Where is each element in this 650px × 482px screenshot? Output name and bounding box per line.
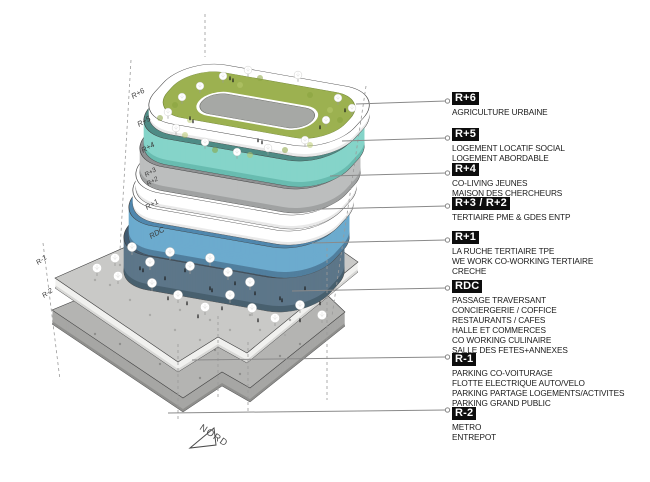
grass-texture: [337, 117, 343, 123]
person-icon: [186, 301, 187, 305]
floor-code-badge: R+5: [452, 128, 479, 141]
floor-code-badge: RDC: [452, 280, 482, 293]
floor-description-line: HALLE ET COMMERCES: [452, 325, 568, 335]
person-icon: [164, 276, 165, 280]
concrete-speck: [159, 363, 161, 365]
floor-description: AGRICULTURE URBAINE: [452, 107, 551, 117]
floor-tag-r6: R+6: [130, 86, 147, 101]
person-icon: [257, 318, 258, 322]
floor-description-line: RESTAURANTS / CAFES: [452, 315, 568, 325]
floor-description-line: CO WORKING CULINAIRE: [452, 335, 568, 345]
leader-line-rm2: [168, 410, 446, 413]
floor-description: TERTIAIRE PME & GDES ENTP: [452, 212, 574, 222]
floor-code-badge: R+1: [452, 231, 479, 244]
floor-code-badge: R+3 / R+2: [452, 197, 510, 210]
concrete-speck: [279, 355, 281, 357]
floor-code-badge: R+6: [452, 92, 479, 105]
grass-texture: [172, 102, 178, 108]
person-icon: [184, 268, 185, 272]
legend-item-r3-r2: R+3 / R+2 TERTIAIRE PME & GDES ENTP: [452, 193, 574, 222]
concrete-speck: [249, 314, 251, 316]
floor-description-line: AGRICULTURE URBAINE: [452, 107, 548, 117]
grass-texture: [327, 107, 333, 113]
person-icon: [167, 296, 168, 300]
legend-item-rm2: R-2 METRO ENTREPOT: [452, 403, 497, 442]
architecture-program-diagram: R+6 R+5 R+4 R+3 R+2 R+1 RDC R-1 R-2 NORD…: [0, 0, 650, 482]
leader-end-circle: [445, 286, 449, 290]
leader-end-circle: [445, 99, 449, 103]
floor-tag-rm2: R-2: [41, 287, 54, 299]
concrete-speck: [174, 329, 176, 331]
floor-description-line: TERTIAIRE PME & GDES ENTP: [452, 212, 570, 222]
floor-description: PARKING CO-VOITURAGE FLOTTE ELECTRIQUE A…: [452, 368, 630, 408]
person-icon: [221, 306, 222, 310]
grass-texture: [212, 147, 218, 153]
person-icon: [344, 108, 345, 112]
person-icon: [257, 138, 258, 142]
grass-texture: [282, 147, 288, 153]
person-icon: [139, 266, 140, 270]
floor-description: PASSAGE TRAVERSANT CONCIERGERIE / COFFIC…: [452, 295, 571, 355]
concrete-speck: [109, 284, 111, 286]
floor-description-line: PARKING PARTAGE LOGEMENTS/ACTIVITES: [452, 388, 624, 398]
north-arrow-icon: NORD: [190, 422, 230, 449]
floor-description: METRO ENTREPOT: [452, 422, 497, 442]
concrete-speck: [229, 329, 231, 331]
concrete-speck: [129, 299, 131, 301]
leader-end-circle: [445, 408, 449, 412]
grass-texture: [182, 132, 188, 138]
leader-end-circle: [445, 171, 449, 175]
concrete-speck: [289, 319, 291, 321]
grass-texture: [307, 92, 313, 98]
floor-description-line: LA RUCHE TERTIAIRE TPE: [452, 246, 593, 256]
person-icon: [197, 314, 198, 318]
floor-description-line: PARKING CO-VOITURAGE: [452, 368, 624, 378]
floor-description-line: METRO: [452, 422, 496, 432]
concrete-speck: [149, 314, 151, 316]
leader-end-circle: [445, 355, 449, 359]
concrete-speck: [239, 373, 241, 375]
leader-end-circle: [445, 136, 449, 140]
person-icon: [192, 119, 193, 123]
person-icon: [299, 318, 300, 322]
grass-texture: [157, 115, 163, 121]
floor-description: LA RUCHE TERTIAIRE TPE WE WORK CO-WORKIN…: [452, 246, 598, 276]
person-icon: [281, 298, 282, 302]
person-icon: [232, 78, 233, 82]
person-icon: [211, 288, 212, 292]
legend-item-rdc: RDC PASSAGE TRAVERSANT CONCIERGERIE / CO…: [452, 276, 571, 355]
person-icon: [229, 76, 230, 80]
person-icon: [209, 286, 210, 290]
concrete-speck: [199, 339, 201, 341]
floor-description-line: FLOTTE ELECTRIQUE AUTO/VELO: [452, 378, 624, 388]
leader-end-circle: [445, 238, 449, 242]
concrete-speck: [209, 319, 211, 321]
grass-texture: [257, 75, 263, 81]
person-icon: [319, 301, 320, 305]
person-icon: [254, 291, 255, 295]
concrete-speck: [94, 279, 96, 281]
floor-description-line: LOGEMENT LOCATIF SOCIAL: [452, 143, 565, 153]
person-icon: [261, 140, 262, 144]
person-icon: [189, 116, 190, 120]
floor-description-line: CO-LIVING JEUNES: [452, 178, 562, 188]
person-icon: [304, 286, 305, 290]
concrete-speck: [284, 334, 286, 336]
floor-description-line: CONCIERGERIE / COFFICE: [452, 305, 568, 315]
floor-description-line: CRECHE: [452, 266, 593, 276]
grass-texture: [247, 152, 253, 158]
concrete-speck: [179, 309, 181, 311]
person-icon: [319, 125, 320, 129]
person-icon: [142, 268, 143, 272]
person-icon: [234, 281, 235, 285]
floor-code-badge: R-1: [452, 353, 476, 366]
floor-description-line: PASSAGE TRAVERSANT: [452, 295, 568, 305]
legend-item-r1: R+1 LA RUCHE TERTIAIRE TPE WE WORK CO-WO…: [452, 227, 598, 276]
floor-tag-rm1: R-1: [35, 254, 48, 266]
legend-item-r6: R+6 AGRICULTURE URBAINE: [452, 88, 551, 117]
concrete-speck: [94, 333, 96, 335]
grass-texture: [237, 82, 243, 88]
floor-code-badge: R+4: [452, 163, 479, 176]
floor-description-line: ENTREPOT: [452, 432, 496, 442]
concrete-speck: [259, 329, 261, 331]
floor-description-line: WE WORK CO-WORKING TERTIAIRE: [452, 256, 593, 266]
concrete-speck: [199, 377, 201, 379]
legend-item-rm1: R-1 PARKING CO-VOITURAGE FLOTTE ELECTRIQ…: [452, 349, 630, 408]
floor-code-badge: R-2: [452, 407, 476, 420]
concrete-speck: [299, 343, 301, 345]
concrete-speck: [119, 343, 121, 345]
concrete-speck: [119, 264, 121, 266]
leader-end-circle: [445, 204, 449, 208]
legend-item-r5: R+5 LOGEMENT LOCATIF SOCIAL LOGEMENT ABO…: [452, 124, 568, 163]
person-icon: [279, 296, 280, 300]
